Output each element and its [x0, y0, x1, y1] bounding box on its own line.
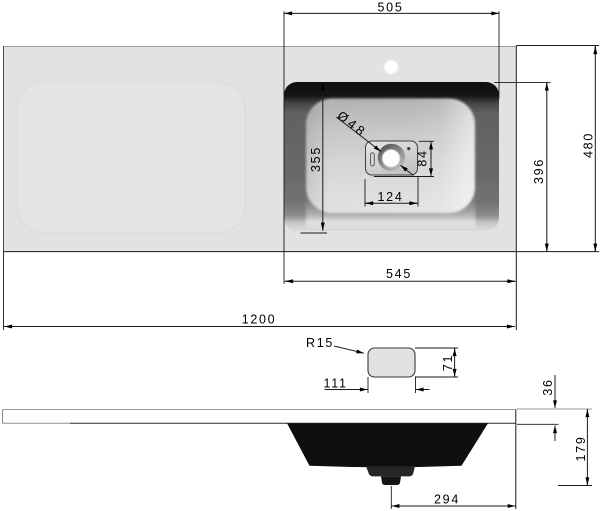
svg-text:111: 111 [324, 376, 348, 390]
svg-text:71: 71 [441, 354, 455, 371]
svg-text:294: 294 [434, 493, 460, 507]
svg-text:1200: 1200 [242, 313, 277, 327]
svg-text:545: 545 [386, 267, 412, 281]
svg-text:396: 396 [532, 158, 546, 184]
svg-text:179: 179 [574, 436, 588, 462]
svg-text:355: 355 [309, 146, 323, 172]
svg-text:505: 505 [378, 0, 404, 14]
svg-text:R15: R15 [306, 336, 334, 350]
svg-text:480: 480 [581, 132, 595, 158]
svg-text:124: 124 [378, 190, 404, 204]
svg-text:36: 36 [541, 378, 555, 395]
svg-text:84: 84 [415, 149, 429, 166]
